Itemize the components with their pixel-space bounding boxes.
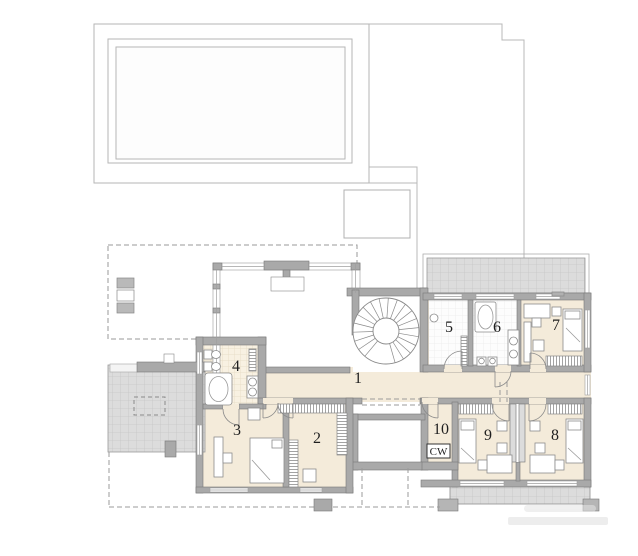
cw-utility-label: CW xyxy=(427,444,450,458)
terrace-chimney xyxy=(164,354,174,363)
svg-text:CW: CW xyxy=(430,446,448,458)
patio-table xyxy=(117,290,134,301)
bidet-room6 xyxy=(488,357,497,366)
bed-room8 xyxy=(566,419,583,463)
vanity-room6 xyxy=(508,330,519,365)
room-label-5: 5 xyxy=(445,319,453,336)
patio-bench-top xyxy=(117,278,134,288)
fixture-room5 xyxy=(430,314,438,322)
desk-room9 xyxy=(487,455,512,473)
watermark xyxy=(508,505,608,525)
balcony-post-left xyxy=(438,499,458,511)
swimming-pool xyxy=(94,24,369,183)
vent-room7 xyxy=(552,292,564,296)
chimney xyxy=(264,261,309,270)
stool-room2 xyxy=(303,469,316,482)
room-label-4: 4 xyxy=(232,358,240,375)
wardrobe-room2-top xyxy=(278,404,345,413)
terrace-post xyxy=(165,441,176,457)
bed-room7 xyxy=(563,309,582,351)
toilet-room4 xyxy=(204,350,221,359)
cabinet-room9 xyxy=(497,443,507,453)
canopy-post xyxy=(314,499,332,511)
floor-plan-canvas: 1 2 3 4 5 6 7 8 9 10 CW xyxy=(0,0,638,556)
bed-room9 xyxy=(459,419,476,463)
chair-room8 xyxy=(555,460,564,470)
entry-void xyxy=(358,418,421,465)
green-roof xyxy=(423,254,589,293)
chair-room3 xyxy=(223,453,232,463)
patio-bench-bottom xyxy=(117,303,134,313)
rooms-8-9-partition xyxy=(510,404,525,462)
chair-room9 xyxy=(478,460,487,470)
room-label-3: 3 xyxy=(233,422,241,439)
chair-room7-b xyxy=(532,318,541,327)
room-label-6: 6 xyxy=(493,319,501,336)
floor-plan-drawing: 1 2 3 4 5 6 7 8 9 10 CW xyxy=(0,0,638,556)
wardrobe-room2-right xyxy=(337,413,347,455)
wardrobe-room9 xyxy=(459,404,493,414)
room-label-7: 7 xyxy=(552,317,560,334)
spiral-staircase xyxy=(353,298,419,364)
table-room9 xyxy=(497,421,507,431)
toilet-room6 xyxy=(477,357,486,366)
radiator-room4 xyxy=(249,349,256,371)
wardrobe-room8 xyxy=(548,404,582,414)
cabinet-room8 xyxy=(535,443,545,453)
desk-room3 xyxy=(214,437,223,477)
room-label-9: 9 xyxy=(484,427,492,444)
bidet-room4 xyxy=(204,362,221,371)
nightstand-room3 xyxy=(248,408,260,420)
desk-room7 xyxy=(524,304,550,318)
flue-box xyxy=(271,277,304,291)
terrace-step xyxy=(110,364,138,372)
bathtub-room4 xyxy=(205,373,232,405)
room-label-10: 10 xyxy=(433,421,449,438)
table-room8 xyxy=(530,421,540,431)
side-terrace xyxy=(108,364,205,457)
chair-room7-a xyxy=(552,307,561,316)
vanity-room4 xyxy=(247,376,258,398)
room-label-2: 2 xyxy=(313,430,321,447)
wardrobe-room2-left xyxy=(289,440,298,487)
room-label-8: 8 xyxy=(551,427,559,444)
desk-room8 xyxy=(530,455,555,473)
bed-room3 xyxy=(250,438,284,483)
outbuilding-outline xyxy=(344,190,410,238)
chair-room7-c xyxy=(533,340,544,351)
wardrobe-room7 xyxy=(546,356,582,366)
room-label-1: 1 xyxy=(354,370,362,387)
